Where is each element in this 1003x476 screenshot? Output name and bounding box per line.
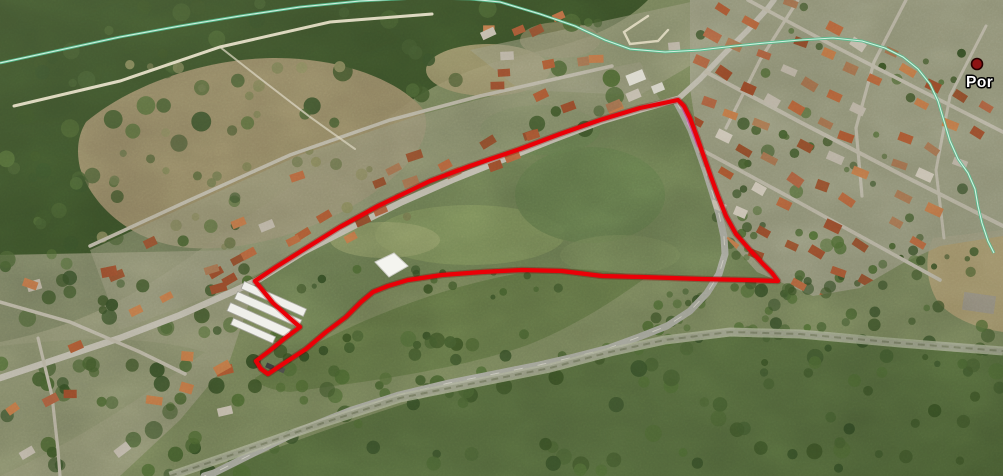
satellite-map[interactable]: Por bbox=[0, 0, 1003, 476]
lighting-overlay bbox=[0, 0, 1003, 476]
placemark-dot-icon[interactable] bbox=[972, 59, 983, 70]
placemark-label: Por bbox=[966, 74, 993, 91]
map-canvas[interactable]: Por bbox=[0, 0, 1003, 476]
